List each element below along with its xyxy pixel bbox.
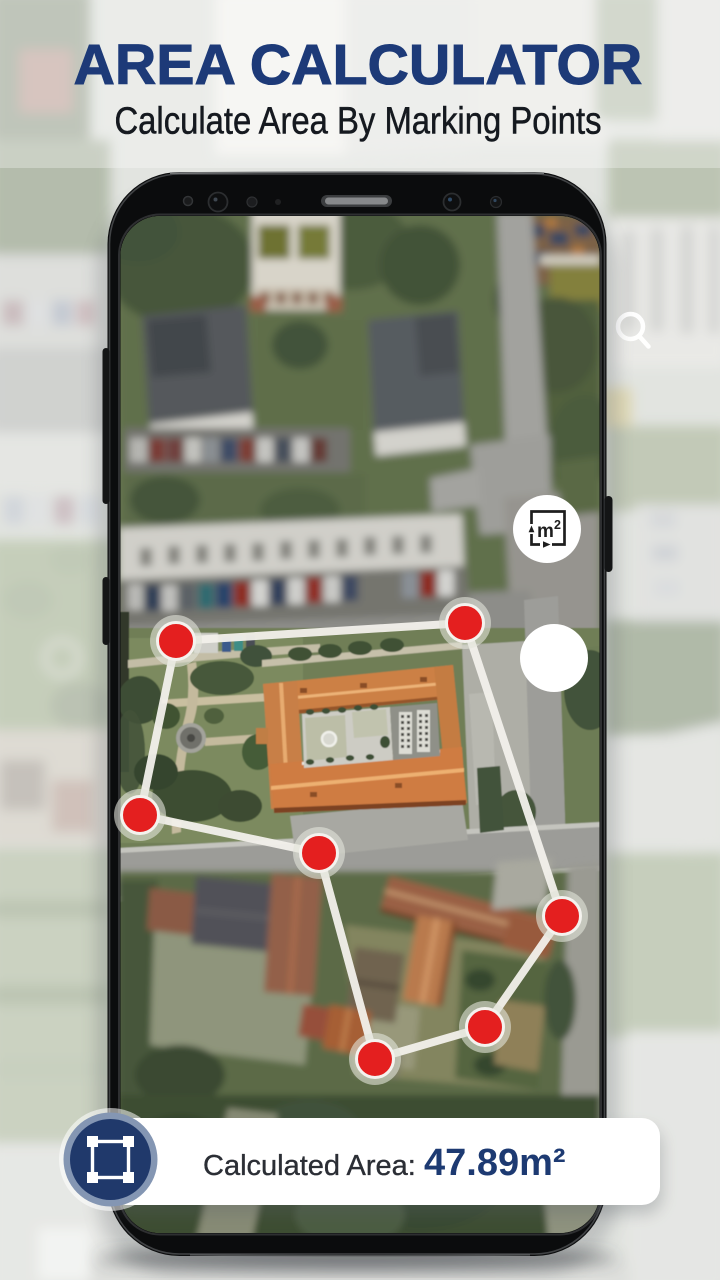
svg-text:Calculated Area:: Calculated Area:: [203, 1150, 416, 1182]
svg-text:AREA CALCULATOR: AREA CALCULATOR: [74, 33, 643, 97]
svg-text:Calculate Area By Marking Poin: Calculate Area By Marking Points: [114, 99, 601, 142]
svg-text:2: 2: [554, 518, 561, 532]
svg-text:47.89m²: 47.89m²: [424, 1142, 566, 1184]
svg-text:m: m: [537, 521, 554, 542]
